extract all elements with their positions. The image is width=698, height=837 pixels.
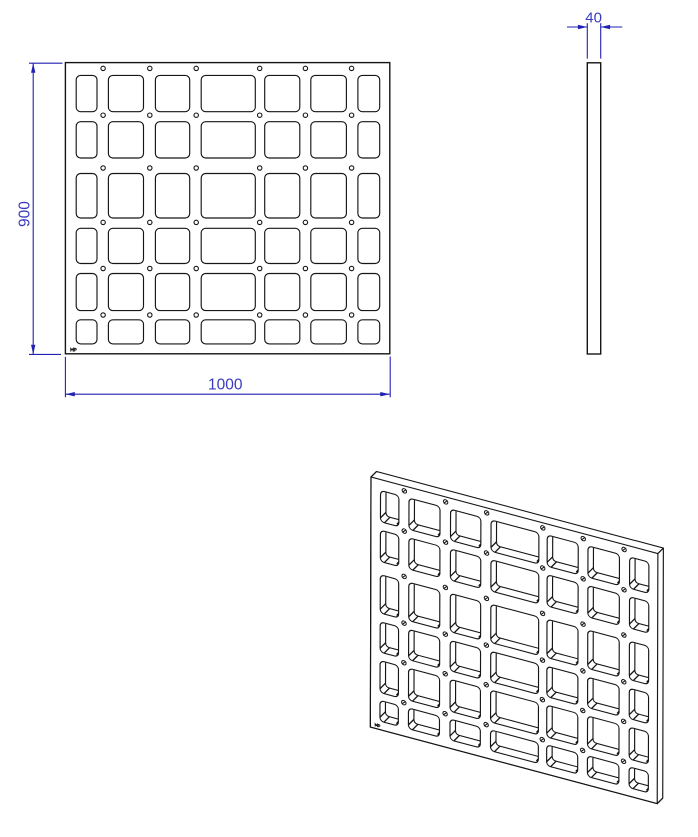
svg-text:900: 900 [17, 201, 34, 227]
svg-text:1000: 1000 [208, 376, 243, 393]
svg-text:40: 40 [585, 10, 602, 27]
